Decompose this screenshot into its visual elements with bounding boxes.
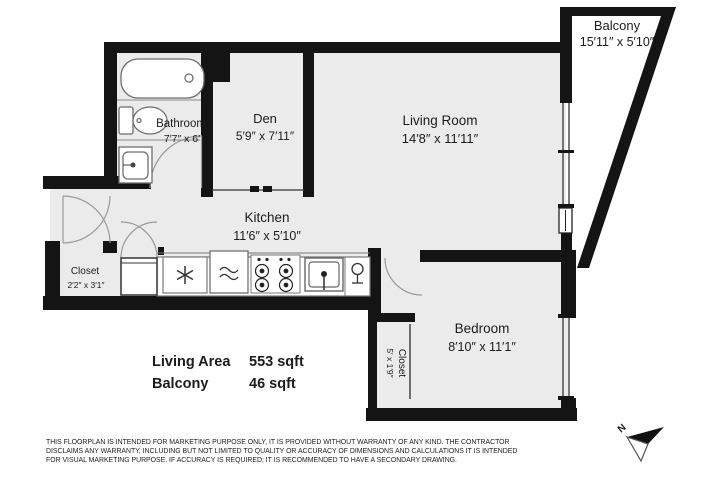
wall-top <box>104 42 567 53</box>
north-label: N <box>616 422 629 435</box>
north-arrow-icon <box>627 427 664 444</box>
wall-balcony-top <box>560 7 673 16</box>
toilet-tank-icon <box>119 107 133 134</box>
oven-icon <box>210 251 248 293</box>
disclaimer-line-1: THIS FLOORPLAN IS INTENDED FOR MARKETING… <box>46 439 510 446</box>
washer-dryer-icon <box>121 258 157 295</box>
wall-bedroom-bottom <box>366 408 577 421</box>
compass: N <box>616 422 664 461</box>
floorplan-page: Balcony 15′11″ x 5′10″ Bathroom 7′7″ x 6… <box>0 0 727 500</box>
wall-bedroom-closet-left <box>368 322 377 414</box>
entry-fixtures <box>121 258 157 295</box>
bathroom-label: Bathroom <box>156 118 206 130</box>
wall-den-right <box>303 42 314 197</box>
bathtub-drain-icon <box>185 74 193 82</box>
bathroom-dims: 7′7″ x 6′ <box>164 133 200 145</box>
entry-closet-label: Closet <box>71 266 100 277</box>
living-room-dims: 14′8″ x 11′11″ <box>402 131 479 146</box>
bedroom-closet-dims: 5′ x 1′9″ <box>385 348 395 377</box>
living-window-tick <box>558 150 574 153</box>
den-dims: 5′9″ x 7′11″ <box>236 129 295 143</box>
bedroom-dims: 8′10″ x 11′1″ <box>448 340 516 354</box>
bedroom-label: Bedroom <box>455 321 510 336</box>
vanity-faucet-icon <box>131 163 136 168</box>
area-summary: Living Area 553 sqft Balcony 46 sqft <box>152 354 304 392</box>
balcony-label: Balcony <box>594 18 641 33</box>
wall-bottom-kitchen <box>43 296 378 310</box>
kitchen-dims: 11′6″ x 5′10″ <box>233 229 301 243</box>
balcony-area-value: 46 sqft <box>249 376 296 392</box>
entry-closet-dims: 2′2″ x 3′1″ <box>67 280 104 290</box>
disclaimer-line-3: FOR VISUAL MARKETING PURPOSE. IF ACCURAC… <box>46 457 457 464</box>
wall-bedroom-top <box>420 250 567 262</box>
living-area-label: Living Area <box>152 354 231 370</box>
living-area-value: 553 sqft <box>249 354 304 370</box>
floorplan-drawing: Balcony 15′11″ x 5′10″ Bathroom 7′7″ x 6… <box>0 0 727 500</box>
wall-wd-stub <box>158 247 164 255</box>
disclaimer: THIS FLOORPLAN IS INTENDED FOR MARKETING… <box>46 439 517 464</box>
bedroom-window-cap <box>558 396 574 400</box>
wall-entry-left <box>45 241 60 303</box>
bedroom-closet-label: Closet <box>396 349 407 378</box>
wall-bedroom-right-lower <box>561 398 576 420</box>
den-slider-tick <box>263 186 272 192</box>
living-room-label: Living Room <box>402 113 477 128</box>
balcony-area-label: Balcony <box>152 376 208 392</box>
wall-bedroom-right-upper <box>561 250 576 318</box>
balcony-dims: 15′11″ x 5′10″ <box>580 35 655 49</box>
wall-den-notch <box>213 42 230 82</box>
kitchen-faucet-icon <box>321 271 327 277</box>
den-label: Den <box>253 111 277 126</box>
wall-balcony-left <box>560 7 572 103</box>
wall-bathroom-left <box>104 42 117 188</box>
kitchen-label: Kitchen <box>244 210 289 225</box>
bedroom-window-cap <box>558 314 574 318</box>
toilet-flush-icon <box>137 119 141 123</box>
disclaimer-line-2: DISCLAIMS ANY WARRANTY, INCLUDING BUT NO… <box>46 448 517 455</box>
kitchen-fixtures <box>157 251 370 296</box>
den-slider-tick <box>250 186 259 192</box>
wall-bedroom-closet-top <box>368 313 415 322</box>
